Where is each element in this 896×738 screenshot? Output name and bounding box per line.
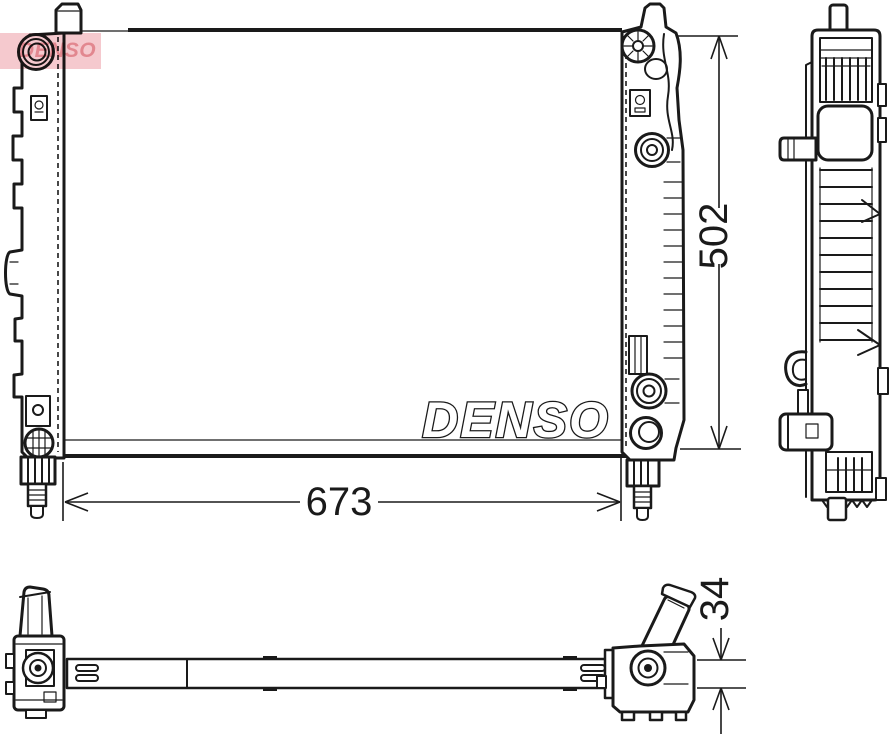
left-fitting — [31, 96, 47, 120]
radiator-bottom-view — [6, 585, 695, 720]
left-drain-plug — [21, 457, 55, 518]
right-drain-plug — [627, 460, 659, 520]
dimension-depth: 34 — [693, 577, 746, 734]
outlet-port — [631, 418, 662, 449]
denso-watermark: DENSO — [0, 33, 101, 69]
radiator-side-view — [780, 5, 888, 520]
dimension-width-label: 673 — [306, 480, 373, 524]
mount-plate — [26, 396, 50, 426]
bottom-right-fitting — [597, 585, 695, 720]
dimension-height-label: 502 — [692, 203, 736, 270]
left-tank — [6, 4, 82, 518]
technical-drawing-canvas: DENSO 673 502 — [0, 0, 896, 738]
denso-core-logo: DENSO — [422, 392, 610, 448]
dimension-depth-label: 34 — [693, 577, 737, 622]
dimension-height: 502 — [677, 36, 741, 449]
radiator-front-view: DENSO — [6, 4, 685, 520]
side-hook-bracket — [786, 352, 806, 386]
side-left-pipe — [780, 138, 816, 160]
mid-bracket — [629, 336, 647, 374]
knurled-knob — [25, 429, 53, 457]
denso-watermark-text: DENSO — [0, 39, 101, 63]
filler-cap — [622, 30, 654, 62]
right-fitting — [630, 90, 650, 116]
radiator-technical-drawing: DENSO 673 502 — [0, 0, 896, 738]
side-bottom-pipe — [780, 414, 832, 450]
top-bracket — [56, 4, 81, 33]
bottom-left-fitting — [6, 587, 64, 718]
right-tank — [622, 4, 684, 520]
dimension-width: 673 — [63, 458, 621, 524]
